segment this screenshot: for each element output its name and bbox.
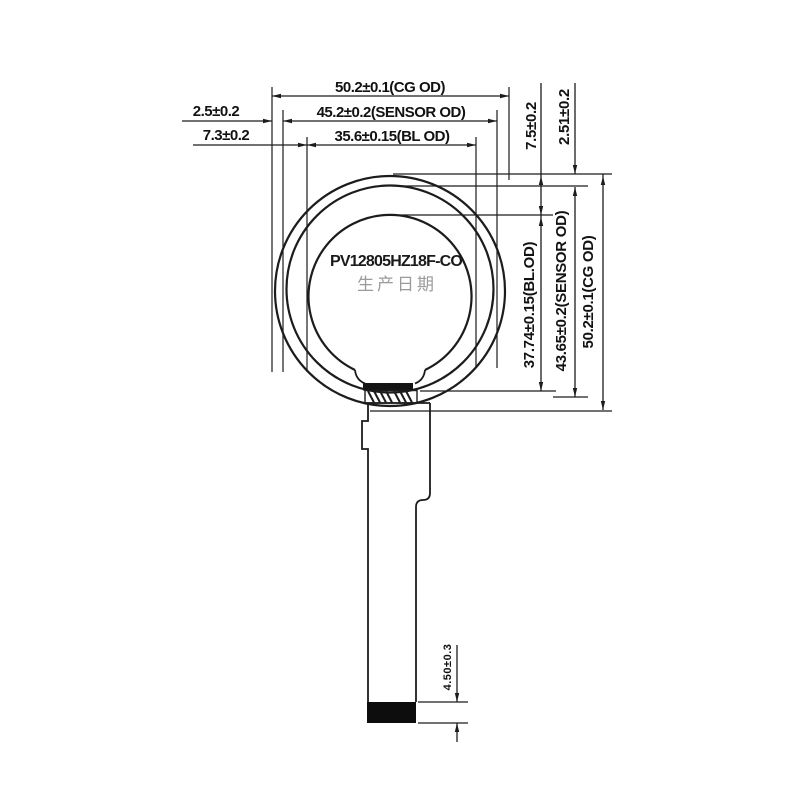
dim-text-cg-bl-top-gap: 7.5±0.2 xyxy=(523,102,540,150)
dim-text-sensor-od-vertical: 43.65±0.2(SENSOR OD) xyxy=(553,210,570,371)
dim-text-cg-sensor-top-gap: 2.51±0.2 xyxy=(556,89,573,145)
center-labels: PV12805HZ18F-CO 生产日期 xyxy=(330,253,462,294)
dim-text-sensor-od-top: 45.2±0.2(SENSOR OD) xyxy=(317,104,466,121)
tail-end-connector xyxy=(367,702,416,723)
dim-text-cg-bl-gap: 7.3±0.2 xyxy=(203,127,250,144)
dim-text-cg-od-top: 50.2±0.1(CG OD) xyxy=(335,79,445,96)
dim-text-bl-od-top: 35.6±0.15(BL OD) xyxy=(334,128,450,145)
bl-neck-left xyxy=(355,370,365,384)
drawing-canvas: 50.2±0.1(CG OD) 45.2±0.2(SENSOR OD) 35.6… xyxy=(0,0,800,800)
connector-top-bar xyxy=(363,383,413,391)
bl-neck-right xyxy=(415,370,425,384)
technical-drawing: 50.2±0.1(CG OD) 45.2±0.2(SENSOR OD) 35.6… xyxy=(0,0,800,800)
fpc-tail xyxy=(362,403,430,723)
dimension-extension-lines xyxy=(272,87,612,723)
dim-text-cg-od-vertical: 50.2±0.1(CG OD) xyxy=(580,235,597,348)
tail-right-edge xyxy=(416,403,430,702)
part-number-label: PV12805HZ18F-CO xyxy=(330,253,462,270)
dim-text-connector-height: 4.50±0.3 xyxy=(442,644,454,691)
dimension-arrowheads xyxy=(263,94,605,732)
dim-text-cg-sensor-gap: 2.5±0.2 xyxy=(193,103,240,120)
production-date-label: 生产日期 xyxy=(357,275,437,294)
tail-left-edge xyxy=(362,403,368,702)
dim-text-bl-od-vertical: 37.74±0.15(BL.OD) xyxy=(521,241,538,368)
